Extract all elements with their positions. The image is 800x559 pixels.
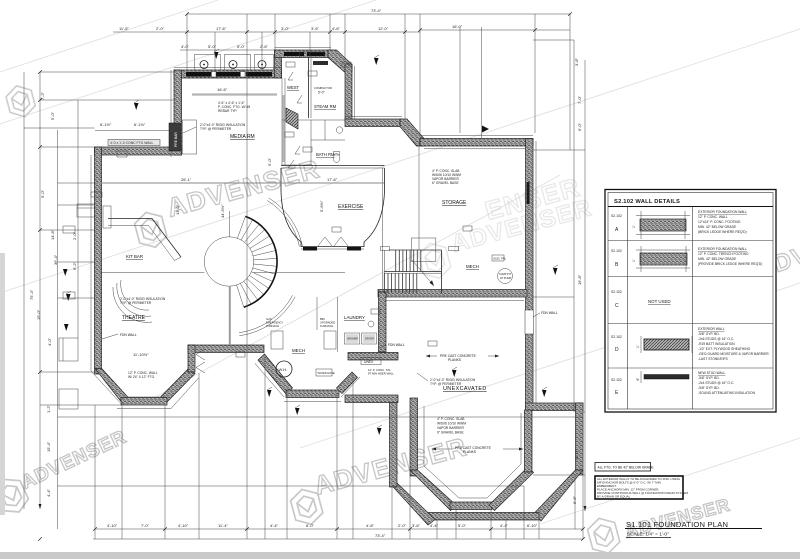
svg-text:16'-0": 16'-0" — [452, 24, 463, 29]
svg-text:MECH: MECH — [466, 264, 479, 269]
svg-text:FDN WALL: FDN WALL — [120, 333, 137, 337]
svg-text:6'-0": 6'-0" — [306, 523, 315, 528]
svg-text:2'-0": 2'-0" — [398, 523, 407, 528]
svg-text:36'-4": 36'-4" — [53, 254, 58, 265]
svg-text:3'-8": 3'-8" — [574, 57, 579, 66]
svg-text:MIN. 42" BELOW GRADE: MIN. 42" BELOW GRADE — [698, 257, 737, 261]
svg-text:UNEXCAVATED: UNEXCAVATED — [443, 386, 487, 392]
svg-text:-SOUND ATTENUATING INSULATION: -SOUND ATTENUATING INSULATION — [698, 391, 756, 395]
svg-text:(BRICK LEDGE WHERE REQ'D): (BRICK LEDGE WHERE REQ'D) — [698, 230, 747, 234]
svg-text:-5/8" GYP. BD.: -5/8" GYP. BD. — [698, 376, 720, 380]
svg-text:4'-8": 4'-8" — [366, 523, 375, 528]
svg-text:-5/8" GYP. BD.: -5/8" GYP. BD. — [698, 386, 720, 390]
svg-text:4'-0": 4'-0" — [47, 337, 52, 346]
svg-text:-2x6 STUDS @ 16" O.C.: -2x6 STUDS @ 16" O.C. — [698, 337, 734, 341]
svg-text:MECH: MECH — [292, 348, 305, 353]
svg-text:11'-10½": 11'-10½" — [133, 352, 149, 357]
svg-text:COMPACTOR: COMPACTOR — [314, 86, 332, 90]
svg-text:6'-6": 6'-6" — [572, 495, 577, 504]
svg-text:3'-6": 3'-6" — [412, 523, 421, 528]
svg-text:TYP. @ PERIMETER: TYP. @ PERIMETER — [200, 127, 232, 131]
svg-text:W/ PUMP: W/ PUMP — [500, 276, 512, 280]
svg-text:12" P. CONC. TRENCH FOOTING: 12" P. CONC. TRENCH FOOTING — [698, 252, 749, 256]
svg-text:16'-8": 16'-8" — [577, 274, 582, 285]
svg-text:NEW STUD WALL: NEW STUD WALL — [698, 371, 726, 375]
svg-text:BY A-DRAIN OR EQUAL: BY A-DRAIN OR EQUAL — [597, 495, 631, 499]
svg-text:6" GRAVEL BASE: 6" GRAVEL BASE — [437, 431, 464, 435]
svg-text:13'-0": 13'-0" — [175, 204, 180, 215]
svg-text:8T MIN HDER WALL: 8T MIN HDER WALL — [368, 372, 395, 376]
svg-text:-2x4 STUDS @ 16" O.C.: -2x4 STUDS @ 16" O.C. — [698, 381, 734, 385]
svg-text:1'-2": 1'-2" — [46, 404, 51, 413]
svg-text:FDN WALL: FDN WALL — [388, 343, 405, 347]
svg-text:44'-5½": 44'-5½" — [220, 204, 225, 218]
svg-text:-R19 BATT INSULATION: -R19 BATT INSULATION — [698, 342, 735, 346]
svg-text:KIT BAR: KIT BAR — [126, 254, 143, 259]
svg-text:1': 1' — [636, 345, 640, 348]
svg-text:MIN. 42" BELOW GRADE: MIN. 42" BELOW GRADE — [698, 225, 737, 229]
svg-text:S2.102 WALL DETAILS: S2.102 WALL DETAILS — [614, 199, 680, 205]
svg-text:6" GRAVEL BASE: 6" GRAVEL BASE — [432, 181, 459, 185]
svg-text:ELEC PNL: ELEC PNL — [494, 257, 507, 261]
svg-text:6'-2": 6'-2" — [72, 261, 77, 270]
svg-text:7'-0": 7'-0" — [141, 523, 150, 528]
svg-text:5'-0": 5'-0" — [318, 91, 326, 95]
svg-text:4'-4": 4'-4" — [500, 523, 509, 528]
svg-text:12'-0": 12'-0" — [378, 26, 389, 31]
svg-text:5'-0": 5'-0" — [50, 111, 55, 120]
svg-text:-5/8" GYP. BD.: -5/8" GYP. BD. — [698, 332, 720, 336]
svg-text:EMERGENCY: EMERGENCY — [266, 321, 284, 325]
svg-text:TYP. @ PERIMETER: TYP. @ PERIMETER — [120, 301, 152, 305]
svg-text:14'-8": 14'-8" — [50, 229, 55, 240]
svg-text:FURNACE: FURNACE — [320, 324, 333, 328]
svg-text:(PROVIDE BRICK LEDGE WHERE REQ: (PROVIDE BRICK LEDGE WHERE REQ'D) — [698, 262, 762, 266]
svg-text:6'-1½": 6'-1½" — [100, 122, 112, 127]
svg-text:B60: B60 — [320, 317, 325, 321]
svg-text:DRYER: DRYER — [365, 337, 374, 341]
svg-text:W.H.: W.H. — [279, 367, 288, 372]
svg-text:UNEX: UNEX — [364, 360, 374, 364]
svg-text:16'-6": 16'-6" — [217, 87, 228, 92]
svg-text:4'-4": 4'-4" — [270, 523, 279, 528]
svg-text:5'-0": 5'-0" — [237, 44, 246, 49]
svg-text:7'-0": 7'-0" — [577, 95, 582, 104]
svg-text:7'-2": 7'-2" — [40, 91, 45, 100]
svg-text:12"x24" P. CONC. FOOTING: 12"x24" P. CONC. FOOTING — [698, 220, 741, 224]
svg-text:4'-0": 4'-0" — [181, 44, 190, 49]
svg-text:6'-10": 6'-10" — [527, 523, 538, 528]
svg-text:S2.102: S2.102 — [611, 378, 622, 382]
svg-text:73'-4": 73'-4" — [371, 8, 382, 13]
svg-text:6'-1½": 6'-1½" — [134, 122, 146, 127]
svg-text:EXTERIOR FOUNDATION WALL: EXTERIOR FOUNDATION WALL — [698, 210, 747, 214]
svg-text:S1.101 FOUNDATION PLAN: S1.101 FOUNDATION PLAN — [626, 520, 728, 529]
svg-text:2'-6": 2'-6" — [260, 44, 269, 49]
svg-text:SCALE: 1/4" = 1'-0": SCALE: 1/4" = 1'-0" — [627, 532, 669, 538]
svg-text:FDN WALL: FDN WALL — [541, 311, 558, 315]
svg-text:WEST: WEST — [287, 85, 300, 90]
svg-text:UPGRADED: UPGRADED — [320, 321, 335, 325]
svg-text:STORAGE: STORAGE — [442, 200, 467, 206]
svg-text:4'-6": 4'-6" — [332, 26, 341, 31]
svg-text:VAPOR BARRIER: VAPOR BARRIER — [437, 426, 464, 430]
svg-text:STEAM RM: STEAM RM — [314, 104, 337, 109]
svg-text:2'-0": 2'-0" — [72, 231, 77, 240]
svg-text:BATH RM: BATH RM — [316, 152, 335, 157]
svg-text:12'-0": 12'-0" — [574, 449, 579, 460]
svg-text:1': 1' — [632, 259, 636, 262]
svg-text:11'-6": 11'-6" — [119, 26, 129, 31]
svg-text:2'-0": 2'-0" — [156, 26, 165, 31]
svg-text:73'-4": 73'-4" — [375, 533, 386, 538]
svg-text:17'-6": 17'-6" — [216, 26, 227, 31]
svg-text:5'-0": 5'-0" — [208, 44, 217, 49]
svg-text:WATER HOSE: WATER HOSE — [318, 371, 335, 375]
svg-text:5'-0": 5'-0" — [267, 157, 272, 166]
svg-text:4'-4": 4'-4" — [430, 523, 439, 528]
svg-text:15'-4": 15'-4" — [46, 441, 51, 452]
svg-text:26'-1": 26'-1" — [181, 177, 192, 182]
svg-text:ALL FTG. TO BE 42" BELOW GRADE: ALL FTG. TO BE 42" BELOW GRADE — [598, 465, 655, 469]
svg-text:LAUNDRY: LAUNDRY — [344, 315, 365, 320]
svg-text:REBAR TYP.: REBAR TYP. — [218, 109, 237, 113]
svg-text:EXERCISE: EXERCISE — [338, 204, 364, 210]
svg-text:5'-6½": 5'-6½" — [319, 200, 324, 212]
svg-text:GAS: GAS — [266, 317, 272, 321]
svg-text:S2.102: S2.102 — [611, 335, 622, 339]
svg-text:9'-0": 9'-0" — [40, 189, 45, 198]
svg-text:6'-0": 6'-0" — [577, 122, 582, 131]
svg-text:NOT USED: NOT USED — [648, 299, 671, 304]
svg-text:-GEO-GUARD MOISTURE & VAPOR BA: -GEO-GUARD MOISTURE & VAPOR BARRIER — [698, 352, 769, 356]
svg-text:3'-6": 3'-6" — [311, 26, 320, 31]
svg-text:5'-0": 5'-0" — [458, 523, 467, 528]
svg-text:MEDIA RM: MEDIA RM — [230, 134, 255, 140]
svg-text:W/6X6 10/10 WWM: W/6X6 10/10 WWM — [437, 422, 466, 426]
svg-text:15'-0": 15'-0" — [36, 309, 41, 320]
svg-text:PLANKS: PLANKS — [463, 450, 477, 454]
svg-text:4'-10": 4'-10" — [107, 523, 118, 528]
svg-text:3'-0": 3'-0" — [281, 26, 290, 31]
svg-text:S2.102: S2.102 — [611, 249, 622, 253]
svg-text:W/ 24" X 12" FTG.: W/ 24" X 12" FTG. — [128, 375, 155, 379]
svg-text:4" P. CONC. SLAB: 4" P. CONC. SLAB — [437, 417, 465, 421]
svg-text:PRE BAR: PRE BAR — [174, 132, 178, 147]
svg-text:4'-0 x 1'-0 CONC FTG WALL: 4'-0 x 1'-0 CONC FTG WALL — [110, 141, 153, 145]
svg-text:4'-10": 4'-10" — [178, 523, 189, 528]
svg-text:WASHER: WASHER — [347, 337, 358, 341]
svg-text:11'-4": 11'-4" — [218, 523, 228, 528]
svg-text:4'-4": 4'-4" — [46, 488, 51, 497]
svg-text:17'-6": 17'-6" — [327, 177, 338, 182]
svg-text:-LAST STONE/EIFS: -LAST STONE/EIFS — [698, 357, 729, 361]
svg-text:PLANKS: PLANKS — [448, 358, 462, 362]
svg-text:75'-4": 75'-4" — [29, 289, 34, 300]
svg-text:12" P. CONC. WALL: 12" P. CONC. WALL — [698, 215, 728, 219]
svg-text:S2.102: S2.102 — [611, 290, 622, 294]
svg-text:-1/2" EXT. PLYWOOD SHEATHING: -1/2" EXT. PLYWOOD SHEATHING — [698, 347, 751, 351]
svg-text:C: C — [615, 303, 619, 309]
svg-text:S2.102: S2.102 — [611, 214, 622, 218]
svg-text:FURNACE: FURNACE — [266, 324, 279, 328]
svg-text:EXTERIOR FOUNDATION WALL: EXTERIOR FOUNDATION WALL — [698, 247, 747, 251]
svg-text:1': 1' — [632, 225, 636, 228]
svg-text:EXTERIOR WALL: EXTERIOR WALL — [698, 327, 725, 331]
svg-text:D: D — [615, 347, 619, 353]
svg-text:SUMP PIT: SUMP PIT — [499, 272, 512, 276]
